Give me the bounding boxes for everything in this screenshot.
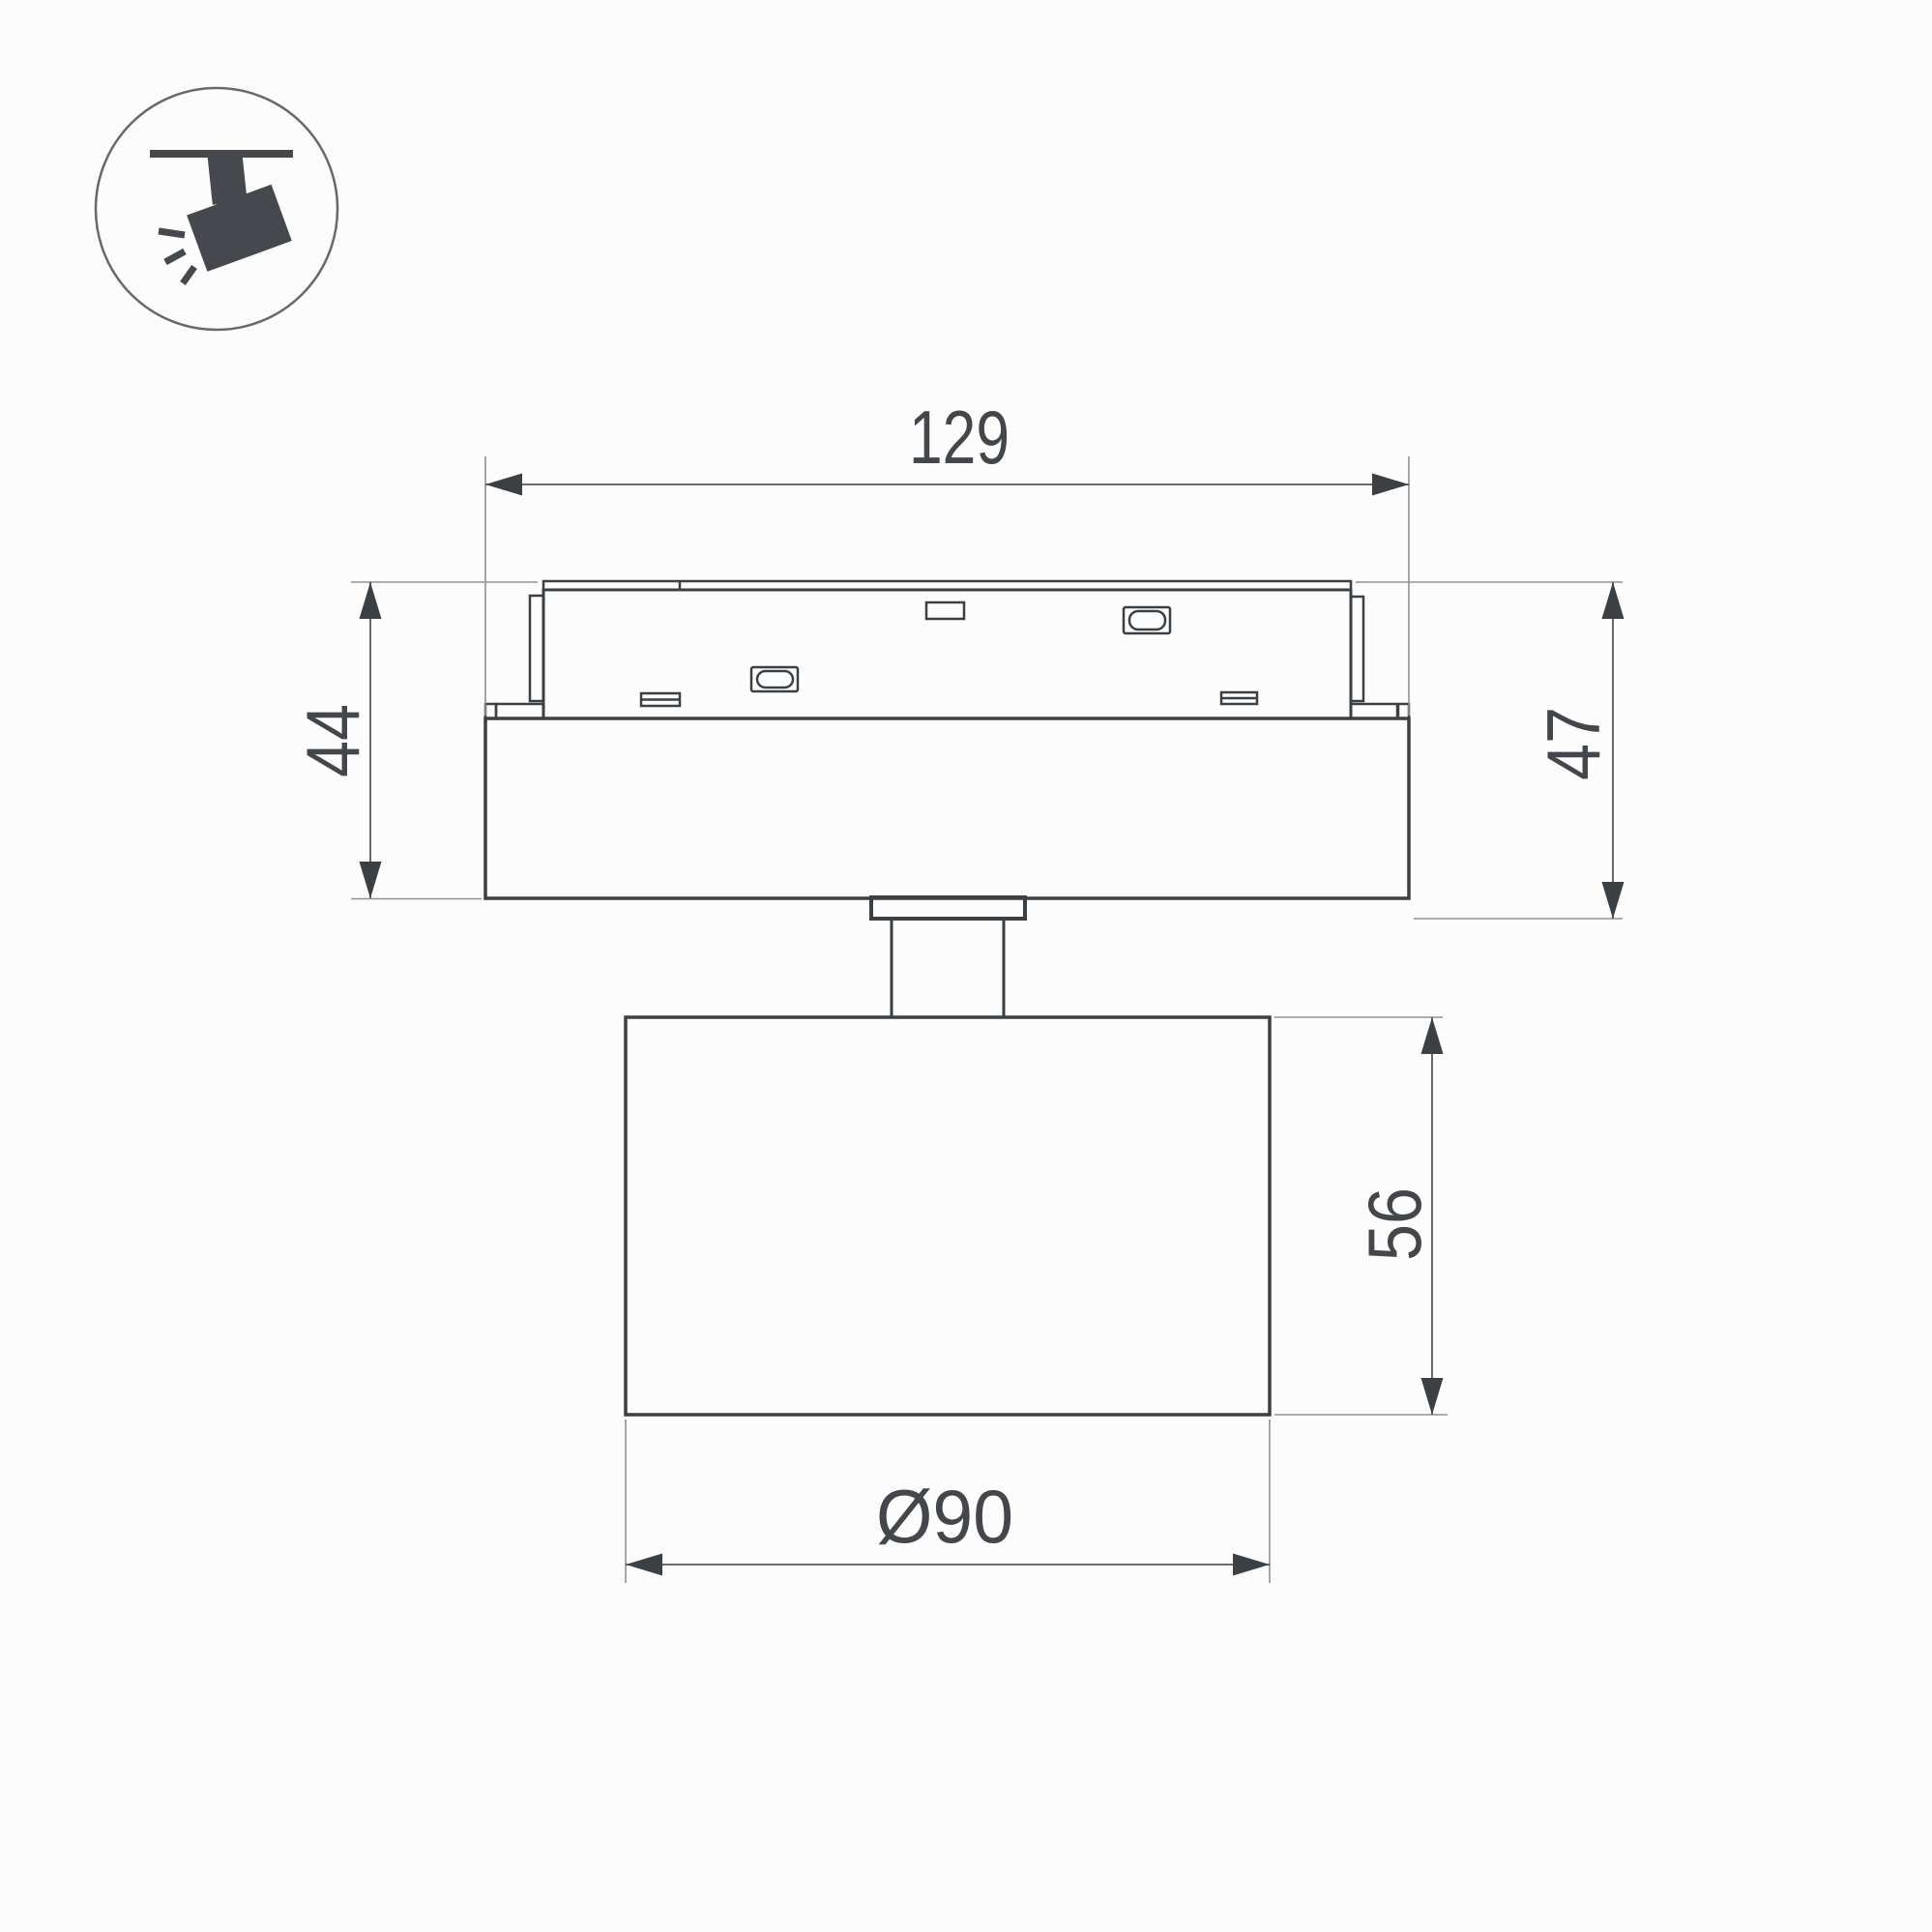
dimension-head-diameter: Ø90 [626, 1420, 1270, 1583]
arrowhead-up [1421, 1017, 1444, 1054]
fixture-drawing [485, 581, 1409, 1415]
left-clip [530, 596, 543, 701]
arrowhead-up [360, 582, 382, 619]
lamp-head [626, 1017, 1270, 1415]
arrowhead-left [626, 1554, 662, 1576]
arrowhead-down [1421, 1378, 1444, 1415]
left-step-ledge [496, 704, 543, 718]
dimension-label-adapter-height-right: 47 [1531, 707, 1616, 780]
dimension-label-adapter-height-left: 44 [290, 704, 375, 777]
flange-steps [485, 704, 1409, 718]
icon-light-rays [159, 231, 194, 283]
oval-slot-right-pill [1129, 611, 1165, 629]
driver-box [485, 718, 1409, 898]
dimensions: 129 44 47 56 [290, 395, 1625, 1583]
right-step-ledge [1351, 704, 1397, 718]
dimension-label-adapter-length: 129 [909, 395, 1010, 480]
arrowhead-left [485, 474, 522, 496]
arrowhead-down [1602, 882, 1625, 919]
right-clip [1351, 597, 1363, 701]
dimension-label-head-diameter: Ø90 [876, 1474, 1013, 1559]
track-spotlight-icon [150, 150, 293, 283]
dimension-adapter-height-right: 47 [1356, 582, 1625, 919]
icon-spot-head [187, 185, 292, 272]
technical-drawing: 129 44 47 56 [0, 0, 1932, 1932]
technical-drawing-page: 129 44 47 56 [0, 0, 1932, 1932]
oval-slot-left-pill [757, 671, 793, 688]
adapter-slots [641, 602, 1257, 706]
arrowhead-up [1602, 582, 1625, 619]
arrowhead-down [360, 862, 382, 898]
arrowhead-right [1233, 1554, 1270, 1576]
right-step-small [1398, 704, 1409, 718]
product-type-icon [96, 88, 337, 330]
dimension-label-head-height: 56 [1352, 1187, 1437, 1261]
dimension-head-height: 56 [1274, 1017, 1448, 1415]
swivel-collar [871, 897, 1025, 919]
dimension-adapter-length: 129 [485, 395, 1409, 716]
left-step-small [485, 704, 496, 718]
rect-slot-center [926, 602, 964, 619]
dimension-adapter-height-left: 44 [290, 582, 538, 899]
arrowhead-right [1372, 474, 1409, 496]
